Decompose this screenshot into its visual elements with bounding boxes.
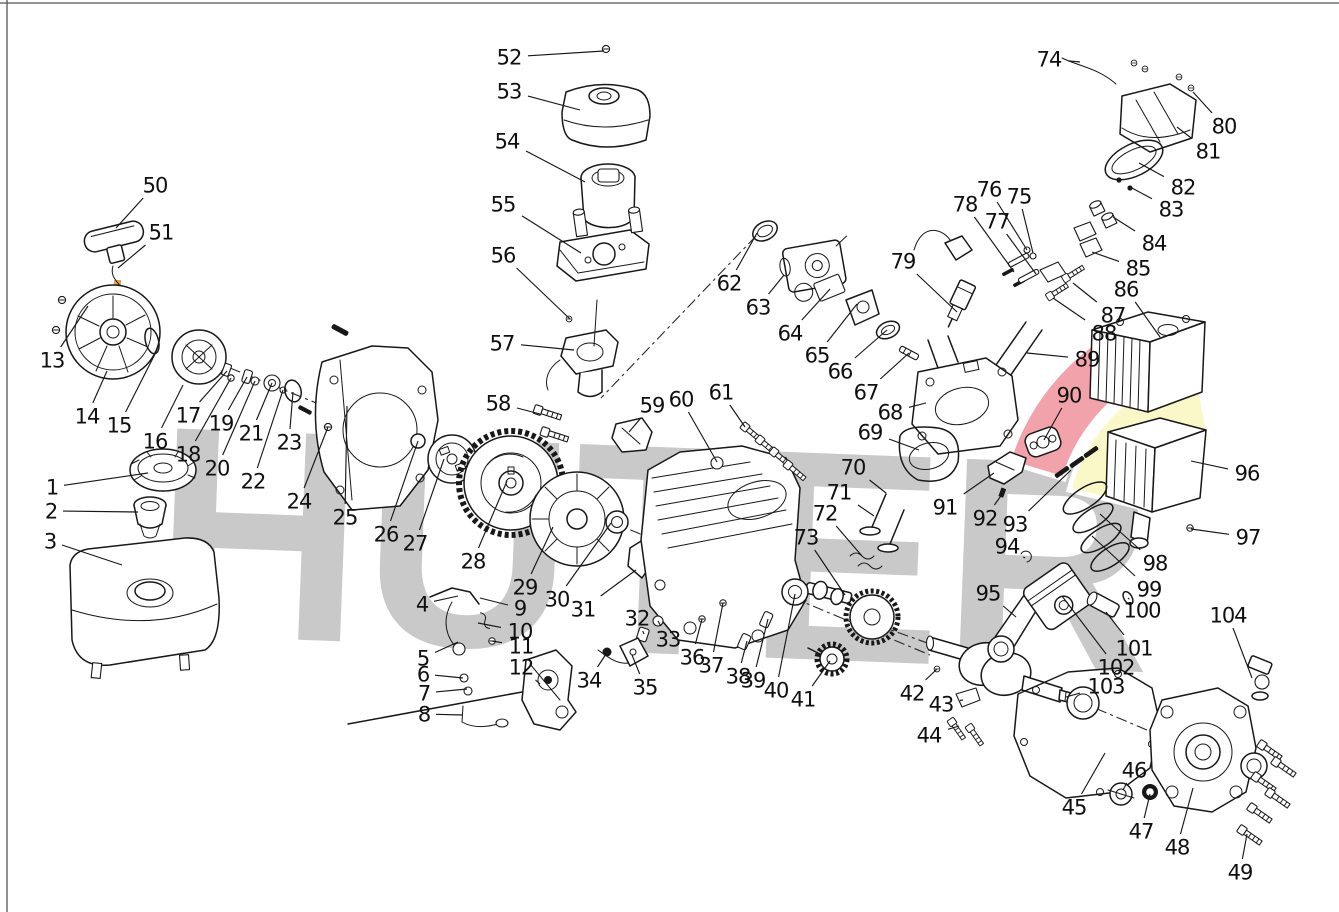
callout-54-number: 54 [495,130,520,154]
callout-81-number: 81 [1196,140,1221,164]
callout-90-number: 90 [1057,384,1082,408]
callout-14: 14 [75,371,107,429]
callout-47-number: 47 [1129,820,1154,844]
callout-74-number: 74 [1037,48,1062,72]
callout-9-number: 9 [514,597,526,621]
callout-59-number: 59 [640,394,665,418]
callout-34-number: 34 [577,669,602,693]
callout-40-number: 40 [764,679,789,703]
callout-100: 100 [1123,598,1160,623]
callout-29-number: 29 [513,576,538,600]
callout-50-number: 50 [143,174,168,198]
callout-82: 82 [1139,163,1195,200]
callout-56-number: 56 [491,244,516,268]
callout-52-leader [528,51,604,56]
callout-63-number: 63 [746,296,771,320]
callout-96-number: 96 [1235,462,1260,486]
callout-46-number: 46 [1122,759,1147,783]
callout-72-number: 72 [813,502,838,526]
callout-65-number: 65 [805,344,830,368]
callout-43-number: 43 [929,693,954,717]
callout-78-number: 78 [953,193,978,217]
callout-37-number: 37 [699,654,724,678]
callout-22-number: 22 [241,470,266,494]
callout-54-leader [526,151,585,182]
callout-79-leader [917,274,957,312]
parts-diagram-stage: HUTER [0,0,1339,912]
air-filter [547,45,651,396]
callout-19-number: 19 [209,412,234,436]
callout-104-number: 104 [1209,604,1247,628]
callout-8-number: 8 [418,703,430,727]
callout-14-number: 14 [75,405,100,429]
callout-104-leader [1233,628,1252,678]
callout-47: 47 [1129,794,1154,844]
callout-49-leader [1242,834,1247,859]
callout-98-number: 98 [1143,552,1168,576]
callout-15-number: 15 [107,414,132,438]
callout-48-number: 48 [1165,836,1190,860]
callout-2: 2 [45,500,138,524]
callout-62-number: 62 [717,272,742,296]
callout-25-number: 25 [333,506,358,530]
callout-97-leader [1191,529,1229,534]
intake-elbow [561,330,618,374]
callout-45: 45 [1062,753,1105,820]
callout-62: 62 [717,233,757,296]
callout-24-number: 24 [287,490,312,514]
callout-56-leader [517,268,570,319]
callout-75-leader [1022,209,1033,253]
callout-23-number: 23 [277,431,302,455]
callout-84-leader [1113,217,1135,231]
callout-70-number: 70 [841,456,866,480]
callout-75-number: 75 [1007,185,1032,209]
callout-57: 57 [490,332,574,356]
callout-64: 64 [778,289,830,346]
carburetor-group [749,217,919,360]
callout-79: 79 [891,250,957,313]
callout-94-number: 94 [995,535,1020,559]
callout-52-number: 52 [497,46,522,70]
callout-65: 65 [805,304,857,368]
callout-103-number: 103 [1087,675,1124,699]
carburetor [777,236,857,304]
callout-33-number: 33 [656,628,681,652]
engine-exploded-diagram: HUTER [0,0,1339,912]
callout-80-number: 80 [1212,115,1237,139]
callout-104: 104 [1209,604,1252,679]
callout-49-number: 49 [1228,861,1253,885]
callout-67-number: 67 [854,381,879,405]
callout-85-leader [1092,252,1119,261]
callout-79-number: 79 [891,250,916,274]
callout-45-leader [1082,753,1106,794]
breather-parts [1074,177,1133,257]
cylinder-block [641,446,806,648]
callout-89-number: 89 [1075,348,1100,372]
callout-83-leader [1132,188,1152,199]
callout-53-number: 53 [497,80,522,104]
callout-83-number: 83 [1159,198,1184,222]
callout-13-number: 13 [40,349,65,373]
callout-4-number: 4 [416,593,429,617]
callout-67-leader [880,353,909,379]
callout-42-number: 42 [900,682,925,706]
callout-62-leader [736,233,757,270]
callout-76-number: 76 [977,178,1002,202]
callout-66-leader [855,330,887,358]
callout-93-number: 93 [1003,513,1028,537]
callout-32: 32 [625,607,650,635]
callout-66-number: 66 [828,360,853,384]
callout-97: 97 [1191,526,1260,550]
callout-88-number: 88 [1092,322,1117,346]
callout-97-number: 97 [1236,526,1261,550]
callout-64-leader [802,289,830,320]
callout-43-leader [960,700,963,701]
callout-32-number: 32 [625,607,650,631]
callout-74: 74 [1037,48,1080,72]
callout-20-number: 20 [205,457,230,481]
callout-64-number: 64 [778,322,803,346]
callout-84: 84 [1113,217,1167,256]
callout-31-number: 31 [571,598,596,622]
callout-2-number: 2 [45,500,57,524]
callout-95-number: 95 [976,582,1001,606]
callout-88-leader [1053,298,1085,320]
callout-27-number: 27 [403,532,428,556]
callout-51-number: 51 [149,221,174,245]
callout-86-number: 86 [1114,278,1139,302]
callout-49: 49 [1228,834,1253,885]
callout-91-number: 91 [933,496,958,520]
callout-85: 85 [1092,252,1150,281]
callout-55-leader [522,216,581,253]
callout-84-number: 84 [1142,232,1167,256]
callout-69-number: 69 [858,421,883,445]
callout-12-number: 12 [509,656,534,680]
bearing-30 [606,511,628,533]
callout-2-leader [63,511,138,512]
callout-63-leader [769,275,784,294]
callout-35-number: 35 [633,676,658,700]
callout-39-number: 39 [741,669,766,693]
callout-1-number: 1 [46,476,58,500]
callout-46: 46 [1122,759,1147,791]
callout-89-leader [1027,353,1068,357]
callout-75: 75 [1007,185,1033,254]
callout-44-number: 44 [917,724,942,748]
callout-57-number: 57 [490,332,515,356]
callout-41-number: 41 [791,688,816,712]
callout-18-number: 18 [176,443,201,467]
callout-77-number: 77 [985,210,1010,234]
callout-80: 80 [1193,92,1236,139]
oil-sensor [1248,655,1273,700]
head-cover [1062,58,1196,188]
callout-82-leader [1139,163,1164,177]
callout-8-leader [436,714,462,715]
callout-92-number: 92 [973,507,998,531]
callout-61-number: 61 [709,381,734,405]
callout-45-number: 45 [1062,796,1087,820]
callout-63: 63 [746,275,784,320]
callout-17-number: 17 [176,404,201,428]
callout-60-number: 60 [669,388,694,412]
callout-26-number: 26 [374,523,399,547]
callout-66: 66 [828,330,887,384]
callout-100-number: 100 [1123,599,1160,623]
callout-3-number: 3 [44,530,56,554]
callout-65-leader [827,304,857,342]
callout-16-number: 16 [143,430,168,454]
callout-30-number: 30 [545,588,570,612]
callout-28-number: 28 [461,550,486,574]
callout-21-number: 21 [239,422,264,446]
callout-87-leader [1073,283,1097,302]
callout-52: 52 [497,46,604,70]
callout-82-number: 82 [1171,176,1196,200]
callout-58-number: 58 [486,392,511,416]
callout-73-number: 73 [794,526,819,550]
recoil-starter [52,285,226,384]
callout-55-number: 55 [491,193,516,217]
